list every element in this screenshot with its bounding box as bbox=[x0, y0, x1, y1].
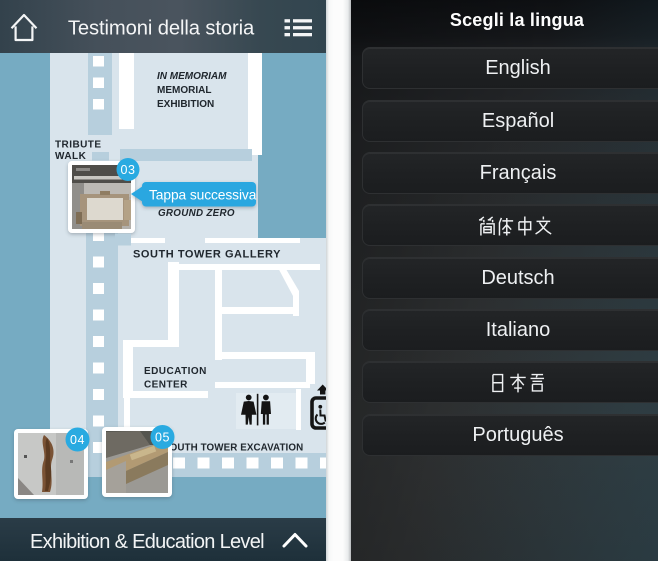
svg-text:Tappa successiva: Tappa successiva bbox=[149, 188, 257, 203]
svg-text:03: 03 bbox=[121, 163, 136, 177]
svg-text:Exhibition & Education Level: Exhibition & Education Level bbox=[30, 531, 264, 553]
svg-text:IN MEMORIAM: IN MEMORIAM bbox=[157, 71, 227, 82]
svg-text:WALK: WALK bbox=[55, 151, 87, 162]
svg-text:CENTER: CENTER bbox=[144, 380, 188, 391]
svg-text:Testimoni della storia: Testimoni della storia bbox=[68, 18, 255, 40]
svg-text:GROUND ZERO: GROUND ZERO bbox=[158, 208, 235, 219]
svg-text:TRIBUTE: TRIBUTE bbox=[55, 140, 101, 151]
svg-text:SOUTH TOWER GALLERY: SOUTH TOWER GALLERY bbox=[133, 249, 281, 261]
svg-text:EDUCATION: EDUCATION bbox=[144, 366, 207, 377]
svg-text:MEMORIAL: MEMORIAL bbox=[157, 85, 211, 96]
svg-text:05: 05 bbox=[155, 431, 170, 445]
svg-text:04: 04 bbox=[70, 433, 85, 447]
svg-text:EXHIBITION: EXHIBITION bbox=[157, 99, 214, 110]
svg-text:SOUTH TOWER EXCAVATION: SOUTH TOWER EXCAVATION bbox=[163, 443, 303, 454]
